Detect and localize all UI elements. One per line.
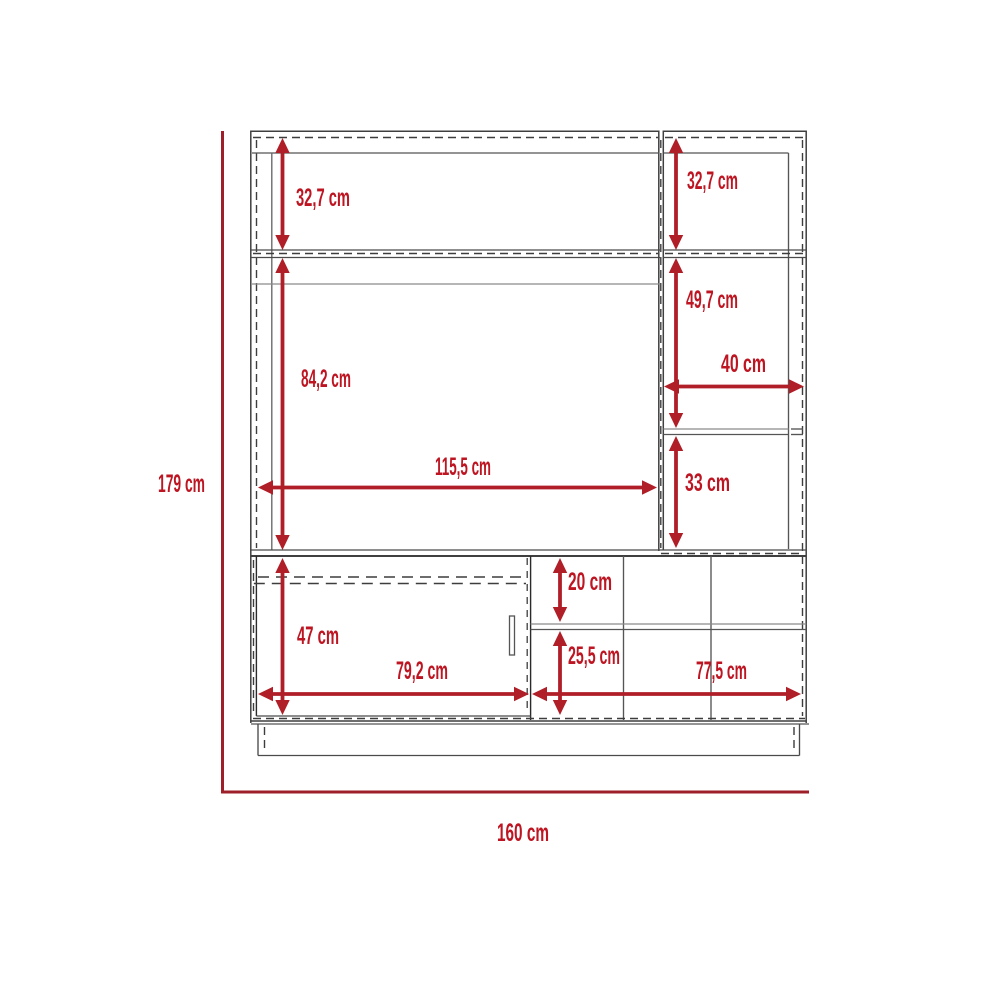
svg-text:179 cm: 179 cm (158, 470, 205, 498)
svg-text:47 cm: 47 cm (297, 622, 339, 650)
svg-text:20 cm: 20 cm (568, 568, 612, 596)
svg-text:49,7 cm: 49,7 cm (686, 286, 738, 314)
svg-text:84,2 cm: 84,2 cm (301, 365, 351, 393)
svg-text:160 cm: 160 cm (497, 819, 549, 847)
svg-text:32,7 cm: 32,7 cm (296, 184, 350, 212)
svg-text:25,5 cm: 25,5 cm (568, 642, 620, 670)
svg-text:33 cm: 33 cm (685, 469, 730, 497)
svg-text:32,7 cm: 32,7 cm (687, 167, 738, 195)
svg-text:79,2 cm: 79,2 cm (396, 657, 448, 685)
svg-text:115,5 cm: 115,5 cm (435, 453, 491, 481)
svg-text:77,5 cm: 77,5 cm (696, 657, 747, 685)
svg-text:40 cm: 40 cm (721, 350, 766, 378)
